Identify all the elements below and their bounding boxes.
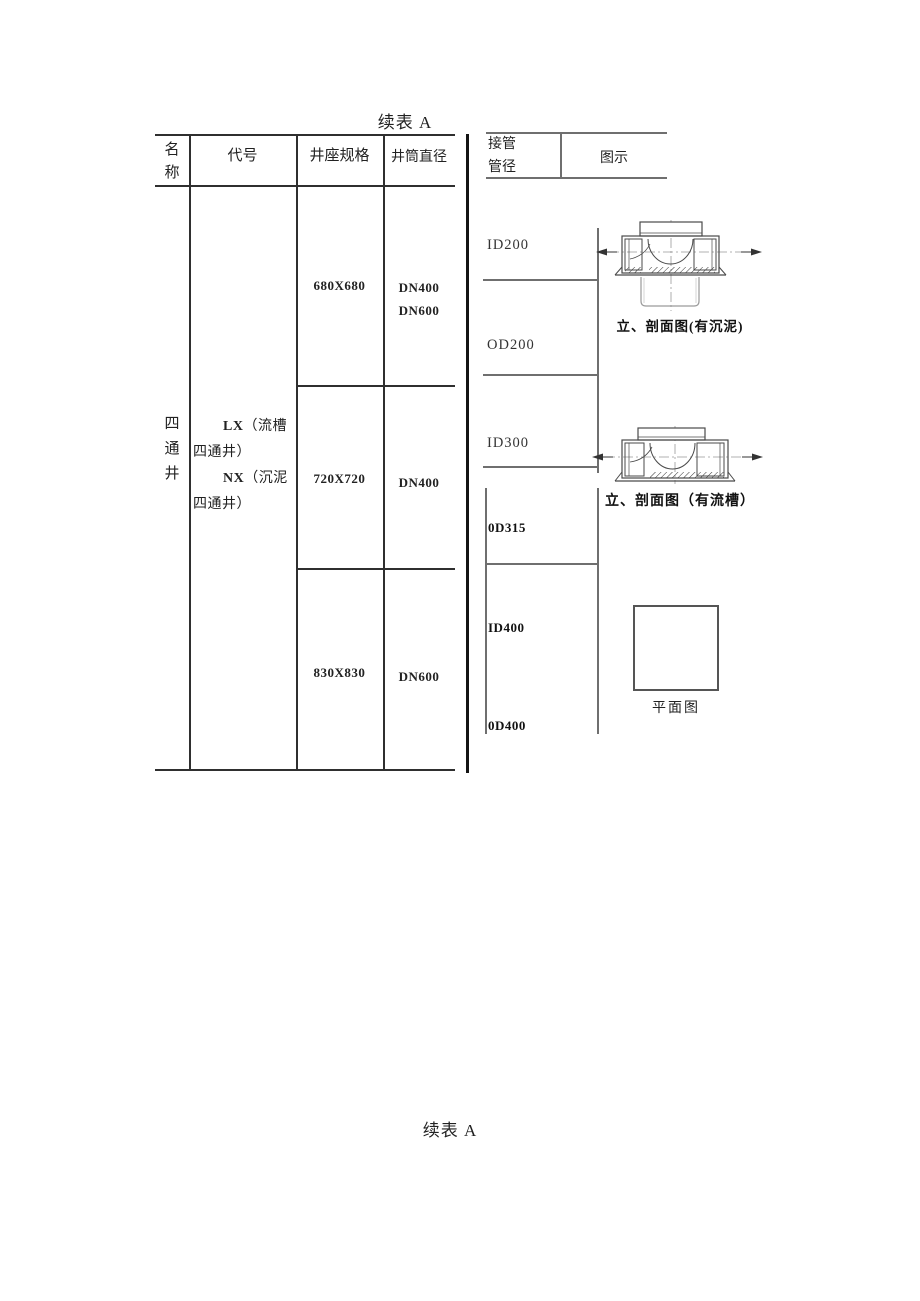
shaft-diameter-row3: DN600 <box>383 665 455 688</box>
plan-view-square <box>633 605 719 691</box>
lower-divider-1 <box>485 563 599 565</box>
flow-bell <box>648 239 693 264</box>
flow-bell <box>650 443 695 469</box>
flange-right <box>728 472 735 481</box>
lower-group-right-border <box>597 488 599 734</box>
category-four-way-well: 四 通 井 <box>155 412 189 487</box>
code-entry-nx: NX（沉泥四通井） <box>193 466 297 518</box>
header-shaft-diameter: 井筒直径 <box>383 146 455 166</box>
right-pipe-socket <box>694 239 716 270</box>
continuation-title-bottom: 续表 A <box>400 1116 500 1141</box>
row-divider-2 <box>296 568 455 570</box>
floor-hatch-left <box>625 267 641 273</box>
table-top-border <box>155 134 455 136</box>
lower-group-left-border <box>485 488 487 734</box>
document-page: 续表 A 名 称 代号 井座规格 井筒直径 四 通 井 LX（流槽四通井） NX… <box>0 0 920 1301</box>
left-pipe-socket <box>625 443 644 476</box>
caption-section-sump: 立、剖面图(有沉泥) <box>600 315 760 335</box>
shaft-diameter-row2: DN400 <box>383 471 455 494</box>
header-seat-spec: 井座规格 <box>296 145 383 168</box>
pipe-size-id400: ID400 <box>488 620 524 636</box>
flow-spout <box>630 244 650 259</box>
shaft-value: DN400 <box>383 276 455 299</box>
seat-spec-row2: 720X720 <box>296 471 383 487</box>
code-nx: NX <box>223 471 244 486</box>
shaft-value: DN600 <box>383 665 455 688</box>
left-arrow-icon <box>592 454 603 461</box>
header-name-line2: 称 <box>155 162 189 185</box>
pipe-size-id300: ID300 <box>487 435 529 452</box>
pipe-size-od200: OD200 <box>487 337 535 354</box>
header-code: 代号 <box>189 145 296 168</box>
floor-hatch <box>649 267 715 273</box>
right-arrow-icon <box>751 249 762 256</box>
header-pipe-line2: 管径 <box>488 156 558 179</box>
category-char: 四 <box>155 412 189 437</box>
table-header-divider <box>155 185 455 187</box>
floor-hatch <box>650 472 724 478</box>
code-cell: LX（流槽四通井） NX（沉泥四通井） <box>193 414 297 518</box>
flange-left <box>615 267 622 275</box>
header-name: 名 称 <box>155 139 189 185</box>
pipe-size-0d315: 0D315 <box>488 520 526 536</box>
seat-spec-row3: 830X830 <box>296 665 383 681</box>
section-drawing-channel <box>590 424 765 486</box>
right-arrow-icon <box>752 454 763 461</box>
seat-spec-row1: 680X680 <box>296 278 383 294</box>
row-divider-1 <box>296 385 455 387</box>
flange-right <box>719 267 726 275</box>
table-bottom-border <box>155 769 455 771</box>
caption-section-channel: 立、剖面图（有流槽） <box>595 490 765 510</box>
pipe-size-id200: ID200 <box>487 237 529 254</box>
category-char: 通 <box>155 437 189 462</box>
code-entry-lx: LX（流槽四通井） <box>193 414 297 466</box>
left-arrow-icon <box>596 249 607 256</box>
flange-left <box>615 472 622 481</box>
shaft-value: DN400 <box>383 471 455 494</box>
header-pipe-line1: 接管 <box>488 133 558 156</box>
caption-plan-view: 平面图 <box>633 697 719 717</box>
shaft-value: DN600 <box>383 299 455 322</box>
header-illustration: 图示 <box>561 147 667 167</box>
well-section-sump-diagram <box>593 218 765 314</box>
category-char: 井 <box>155 462 189 487</box>
pipe-size-0d400: 0D400 <box>488 718 526 734</box>
well-cap <box>638 428 705 440</box>
well-cap <box>640 222 702 236</box>
left-pipe-socket <box>625 239 642 270</box>
continuation-title-top: 续表 A <box>355 108 455 133</box>
column-divider-name-code <box>189 134 191 771</box>
header-pipe-diameter: 接管 管径 <box>488 133 558 179</box>
code-lx: LX <box>223 419 243 434</box>
upper-divider-2 <box>483 374 599 376</box>
upper-divider-3 <box>483 466 599 468</box>
upper-divider-1 <box>483 279 599 281</box>
shaft-diameter-row1: DN400 DN600 <box>383 276 455 322</box>
flow-spout <box>630 447 652 462</box>
header-name-line1: 名 <box>155 139 189 162</box>
sump-tub <box>641 277 699 306</box>
section-separator-line <box>466 134 469 773</box>
well-section-channel-diagram <box>590 424 765 486</box>
section-drawing-sump <box>593 218 765 314</box>
